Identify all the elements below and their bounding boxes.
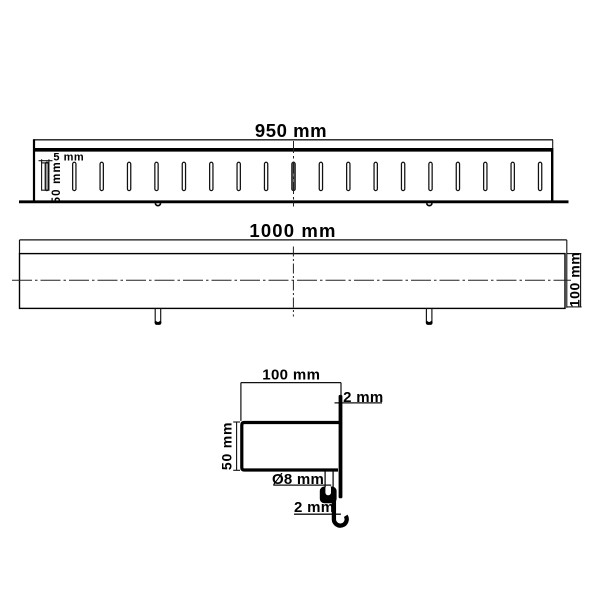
svg-text:2 mm: 2 mm <box>294 499 334 516</box>
svg-text:950 mm: 950 mm <box>255 120 327 141</box>
svg-text:50 mm: 50 mm <box>51 161 63 203</box>
svg-text:100 mm: 100 mm <box>262 366 320 383</box>
svg-text:1000 mm: 1000 mm <box>249 220 336 241</box>
svg-text:100 mm: 100 mm <box>567 252 583 307</box>
svg-text:50 mm: 50 mm <box>219 422 235 470</box>
